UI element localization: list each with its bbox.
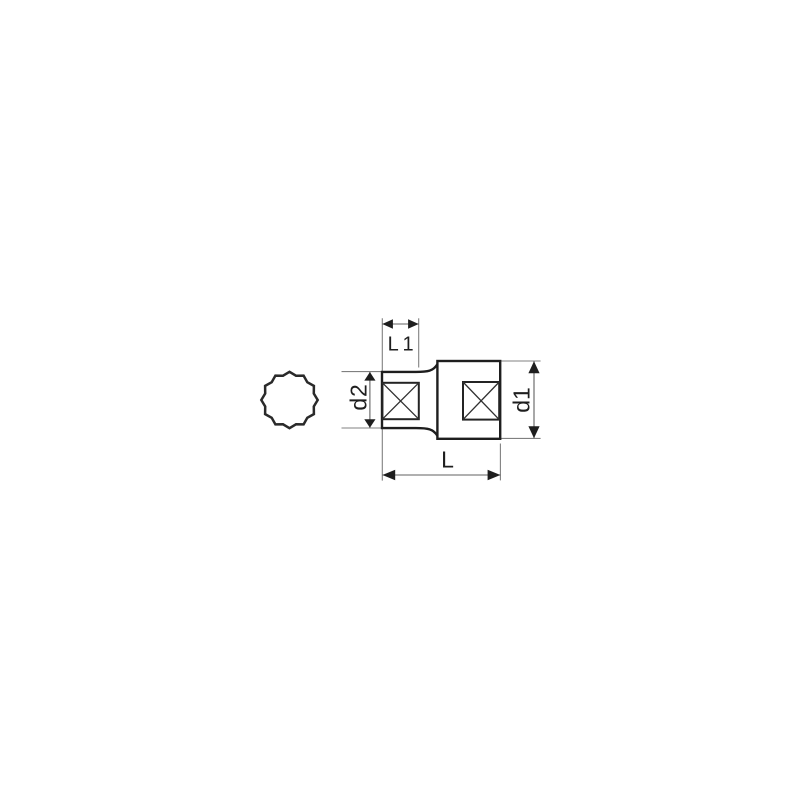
svg-text:L 1: L 1 [388, 333, 414, 355]
svg-text:d1: d1 [508, 387, 534, 413]
svg-text:L: L [441, 447, 454, 473]
svg-text:d2: d2 [346, 383, 372, 410]
